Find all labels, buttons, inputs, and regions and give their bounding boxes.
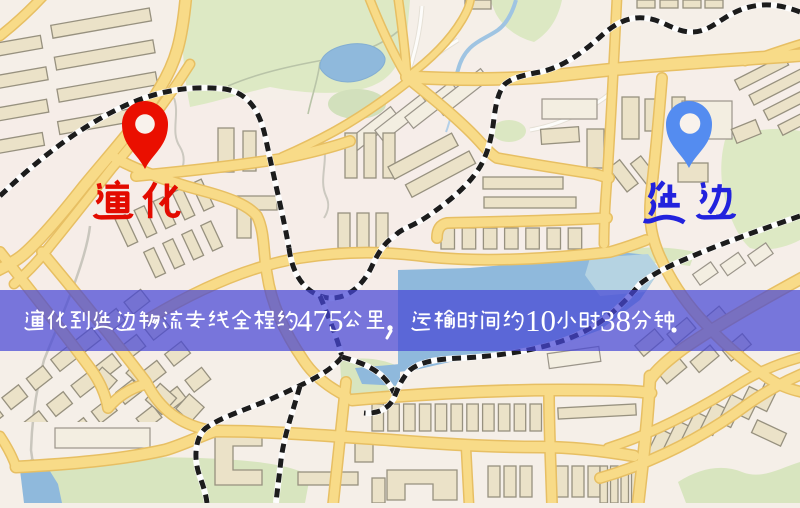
svg-text:10: 10	[525, 303, 556, 338]
svg-text:38: 38	[600, 303, 631, 338]
svg-text:475: 475	[297, 303, 344, 338]
